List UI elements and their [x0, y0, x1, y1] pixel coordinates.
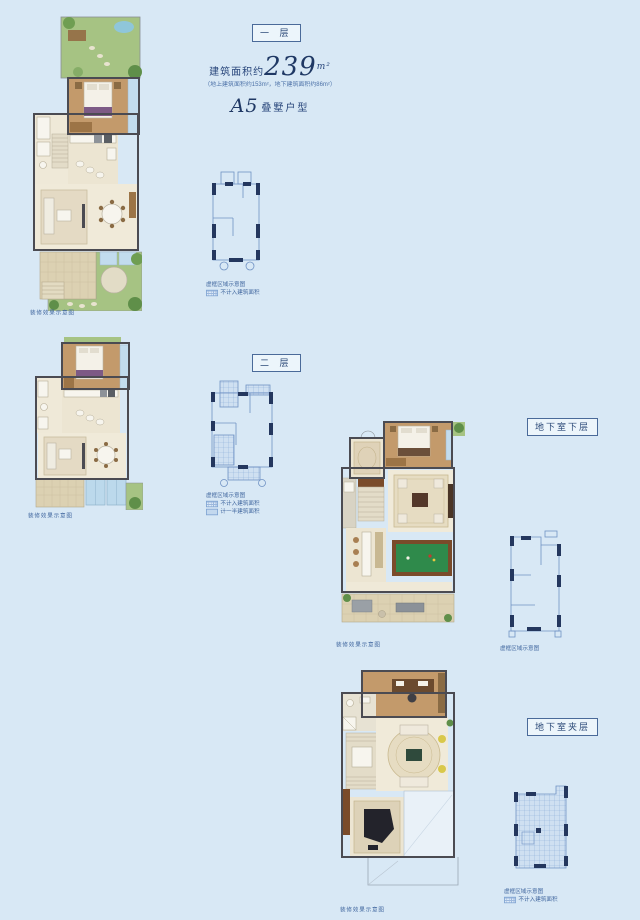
coffee-table-icon: [412, 493, 428, 507]
armchair-icon: [434, 514, 443, 523]
coffee-table-icon: [406, 749, 422, 761]
floorplan-b2-schematic: [504, 780, 578, 882]
floor2-label: 二 层: [252, 354, 301, 372]
floorplan-2f-schematic: [198, 377, 286, 487]
legend-b1: 虚框区域示意图: [500, 645, 539, 653]
legend-line: 虚框区域示意图: [206, 492, 260, 499]
floorplan-b2-rendering: [334, 667, 465, 905]
legend-line: 虚框区域示意图: [206, 281, 260, 288]
lower-outline: [368, 857, 458, 885]
kitchen: [62, 389, 120, 433]
billiard-table-icon: [396, 544, 448, 572]
stairs-icon: [52, 134, 68, 168]
legend-2f: 虚框区域示意图 不计入建筑面积 计一半建筑面积: [206, 492, 260, 516]
area-note: （地上建筑面积约153m²，地下建筑面积约86m²）: [177, 80, 364, 89]
wall-marks: [510, 536, 561, 631]
tv-cabinet-icon: [448, 484, 453, 518]
tv-icon: [82, 204, 85, 228]
tv-icon: [82, 443, 85, 469]
basement-lower-label: 地下室下层: [527, 418, 598, 436]
area-prefix: 建筑面积约: [209, 67, 264, 78]
sofa-icon: [400, 777, 428, 787]
legend-b2: 虚框区域示意图 不计入建筑面积: [504, 888, 558, 904]
pouf-icon: [438, 765, 446, 773]
dining-table-icon: [102, 204, 122, 224]
garden-bottom: [40, 252, 142, 311]
hatch-swatch-icon: [206, 289, 218, 295]
tree-icon: [73, 67, 83, 77]
wardrobe-icon: [386, 458, 406, 466]
plan1-caption: 装修效果示意图: [30, 309, 75, 317]
armchair-icon: [434, 479, 443, 488]
tree-icon: [454, 423, 464, 433]
basement-mezzanine-label: 地下室夹层: [527, 718, 598, 736]
dining-table-icon: [97, 446, 115, 464]
plan2-caption: 装修效果示意图: [28, 512, 73, 520]
bathroom: [342, 693, 376, 731]
model-line: A5叠墅户型: [160, 95, 380, 117]
tree-icon: [63, 17, 75, 29]
legend-line: 虚框区域示意图: [504, 888, 558, 895]
tree-icon: [129, 497, 141, 509]
plan-b2-caption: 装修效果示意图: [340, 906, 385, 914]
floorplan-b1-rendering: [334, 420, 465, 639]
floorplan-1f-rendering: [8, 14, 142, 311]
tree-icon: [343, 594, 351, 602]
tree-icon: [128, 297, 142, 311]
half-swatch-icon: [206, 508, 218, 514]
living-dining: [34, 184, 138, 250]
legend-line: 不计入建筑面积: [206, 500, 260, 507]
wall-marks: [212, 182, 260, 262]
stone-circle-icon: [101, 267, 127, 293]
floor1-label: 一 层: [252, 24, 301, 42]
title-block: 建筑面积约239m² （地上建筑面积约153m²，地下建筑面积约86m²） A5…: [160, 56, 380, 117]
bar: [346, 528, 386, 582]
sofa-icon: [47, 443, 56, 469]
office-chair-icon: [408, 694, 417, 703]
legend-line: 不计入建筑面积: [504, 896, 558, 903]
wardrobe-icon: [70, 122, 92, 132]
bedroom: [62, 343, 129, 389]
building-area-line: 建筑面积约239m²: [160, 56, 380, 78]
bath-utility: [36, 377, 62, 433]
wardrobe-icon: [64, 377, 74, 388]
armchair-icon: [398, 479, 407, 488]
sofa-icon: [400, 725, 428, 735]
garden-top: [61, 17, 142, 79]
area-value: 239: [264, 52, 317, 82]
piano-room: [342, 789, 404, 857]
utility-stairs: [342, 478, 384, 528]
legend-1f: 虚框区域示意图 不计入建筑面积: [206, 281, 260, 297]
sitting-area: [376, 717, 454, 791]
legend-line: 计一半建筑面积: [206, 508, 260, 515]
floorplan-1f-schematic: [203, 166, 271, 278]
model-suffix: 叠墅户型: [261, 103, 309, 114]
sofa-icon: [44, 198, 54, 234]
tree-icon: [444, 614, 452, 622]
door-swing-icon: [361, 431, 375, 438]
plan-b1-caption: 装修效果示意图: [336, 641, 381, 649]
terrace: [36, 479, 143, 510]
floorplan-b1-schematic: [497, 527, 573, 641]
toilet-icon: [347, 700, 354, 707]
floorplan-2f-rendering: [24, 337, 143, 510]
living-dining: [38, 433, 126, 479]
brochure-page: 一 层 建筑面积约239m² （地上建筑面积约153m²，地下建筑面积约86m²…: [0, 0, 640, 920]
armchair-icon: [398, 514, 407, 523]
tree-icon: [128, 65, 142, 79]
family-room: [388, 470, 454, 532]
stairs: [346, 733, 378, 789]
pouf-icon: [438, 735, 446, 743]
hatch-swatch-icon: [206, 500, 218, 506]
area-unit: m²: [317, 62, 331, 72]
legend-line: 虚框区域示意图: [500, 645, 539, 652]
hatch-swatch-icon: [504, 896, 516, 902]
void-area: [404, 791, 454, 857]
model-code: A5: [231, 95, 259, 117]
plant-icon: [447, 720, 454, 727]
terrace: [342, 594, 454, 622]
gym-equipment-icon: [352, 600, 372, 612]
bedroom: [68, 78, 139, 134]
pond-icon: [114, 21, 134, 33]
gym-equipment-icon: [396, 603, 424, 612]
bar-counter-icon: [362, 532, 371, 576]
legend-line: 不计入建筑面积: [206, 289, 260, 296]
